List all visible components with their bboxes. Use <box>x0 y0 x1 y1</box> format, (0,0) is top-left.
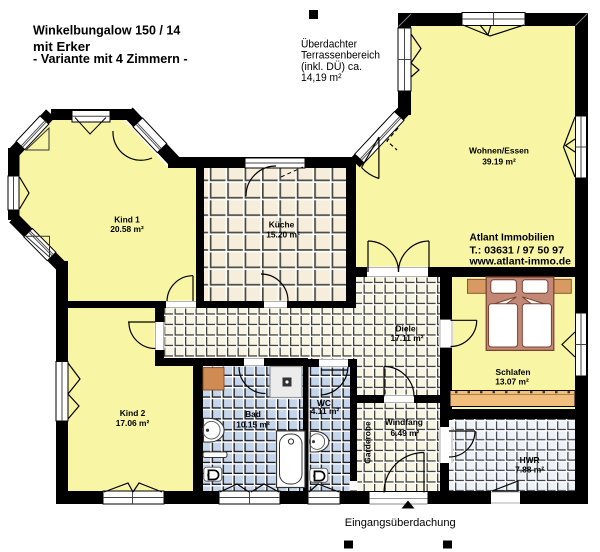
svg-text:15.20 m²: 15.20 m² <box>266 230 300 240</box>
svg-text:4.11 m²: 4.11 m² <box>311 406 340 416</box>
svg-text:7.88 m²: 7.88 m² <box>515 465 544 475</box>
svg-text:13.07 m²: 13.07 m² <box>495 377 529 387</box>
svg-text:Eingangsüberdachung: Eingangsüberdachung <box>345 517 456 529</box>
svg-text:17.06 m²: 17.06 m² <box>116 418 150 428</box>
svg-text:Garderobe: Garderobe <box>363 421 373 464</box>
svg-text:17.11 m²: 17.11 m² <box>390 333 423 343</box>
svg-text:Windfang: Windfang <box>385 417 423 427</box>
svg-text:Kind 2: Kind 2 <box>120 408 146 418</box>
svg-text:20.58 m²: 20.58 m² <box>110 224 144 234</box>
svg-text:Bad: Bad <box>245 409 261 419</box>
svg-text:- Variante mit 4 Zimmern -: - Variante mit 4 Zimmern - <box>33 51 188 66</box>
svg-text:6.49 m²: 6.49 m² <box>390 428 419 438</box>
svg-text:T.: 03631 / 97 50 97: T.: 03631 / 97 50 97 <box>470 246 565 257</box>
svg-text:Atlant Immobilien: Atlant Immobilien <box>470 233 555 244</box>
svg-text:Kind 1: Kind 1 <box>114 215 140 225</box>
svg-text:Schlafen: Schlafen <box>496 367 531 377</box>
svg-text:Winkelbungalow 150 / 14: Winkelbungalow 150 / 14 <box>33 23 181 38</box>
svg-text:www.atlant-immo.de: www.atlant-immo.de <box>468 257 571 268</box>
svg-text:39.19 m²: 39.19 m² <box>482 157 516 167</box>
svg-text:10.15 m²: 10.15 m² <box>236 419 270 429</box>
svg-text:Wohnen/Essen: Wohnen/Essen <box>469 146 529 156</box>
svg-text:HWR: HWR <box>520 455 540 465</box>
svg-text:Küche: Küche <box>269 220 295 230</box>
svg-text:14,19 m²: 14,19 m² <box>301 72 342 84</box>
